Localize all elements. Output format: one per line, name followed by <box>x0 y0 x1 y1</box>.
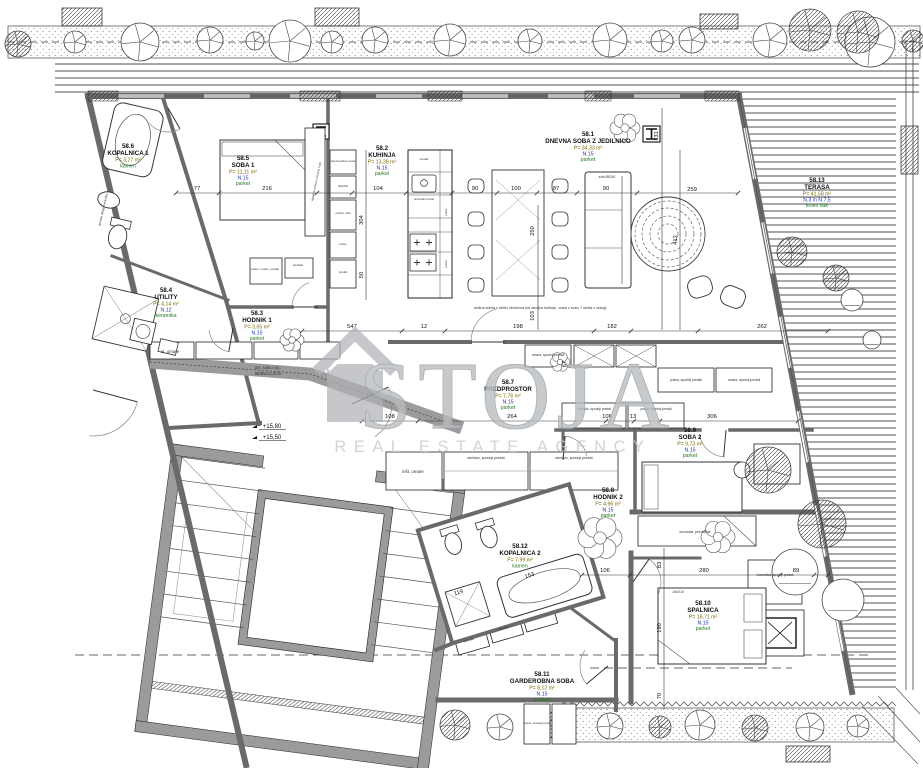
annotation-label: dvižna stena v obliki obložena kot okoli… <box>474 306 607 310</box>
flower-center <box>594 532 606 544</box>
elevator-core <box>242 494 388 657</box>
dimension-label: 131 <box>654 131 660 141</box>
room-finish: parket <box>683 453 698 459</box>
stair-wall <box>135 721 430 768</box>
stair-step <box>161 617 244 628</box>
room-finish: keramika <box>155 313 176 319</box>
drawing-shape <box>822 579 864 621</box>
annotation-label: omara, spodnji predali <box>728 378 761 382</box>
tree-icon <box>837 11 879 53</box>
door-arc <box>89 402 137 436</box>
tree-icon <box>518 29 542 53</box>
room-name: TERASA <box>804 184 830 191</box>
room-number: 58.2 <box>376 145 389 152</box>
annotation-label: polica, spodaj predal <box>523 721 551 725</box>
tree-icon <box>434 24 466 56</box>
dimension-label: 104 <box>373 186 383 192</box>
elevation-arrow-icon <box>252 425 257 428</box>
dimension-label: 50 <box>359 272 365 278</box>
chair-icon <box>552 245 568 259</box>
annotation-label: pomivalno korito <box>414 197 435 201</box>
tree-icon <box>847 715 869 737</box>
stair-step <box>377 599 438 607</box>
chair-icon <box>468 245 484 259</box>
room-finish: parket <box>581 157 596 163</box>
annotation-label: obešalo, spodnji predali <box>555 456 593 460</box>
annotation-label: pečica, niša <box>336 211 351 215</box>
room-name: KOPALNICA 1 <box>107 150 149 157</box>
chair-icon <box>552 212 568 226</box>
watermark: STOJAREAL ESTATE AGENCY <box>316 334 675 456</box>
room-number: 58.9 <box>684 427 697 434</box>
tree-icon <box>593 23 627 57</box>
room-number: 58.13 <box>809 177 825 184</box>
dimension-label: 90 <box>472 186 478 192</box>
dimension-label: 12 <box>421 324 427 330</box>
room-name: SOBA 1 <box>232 162 255 169</box>
elevation-value: +15,50 <box>263 435 282 441</box>
wall-pillar <box>300 91 340 101</box>
hatched-block <box>62 8 102 26</box>
room-number: 58.5 <box>237 155 250 162</box>
room-name: UTILITY <box>154 294 178 301</box>
flower-center <box>713 532 723 542</box>
tree-icon <box>753 23 787 57</box>
armchair-icon <box>718 283 748 311</box>
room-name: SOBA 2 <box>679 434 702 441</box>
stair-step <box>167 571 250 582</box>
annotation-label: police <box>444 208 448 216</box>
annotation-label: el. omare <box>161 349 180 354</box>
annotation-label: 160/210 <box>672 590 684 594</box>
flower-icon <box>701 521 735 552</box>
dimension-label: 100 <box>511 186 521 192</box>
annotation-label: predali <box>420 157 429 161</box>
floorplan-drawing: 58.1DNEVNA SOBA Z JEDILNICOP= 34,33 m²N.… <box>0 0 923 768</box>
room-number: 58.12 <box>512 543 528 550</box>
room-name: GARDEROBNA SOBA <box>510 678 575 685</box>
dimension-label: 262 <box>757 324 767 330</box>
annotation-label: sofa 85/240 <box>599 175 616 179</box>
drawing-shape <box>220 140 305 220</box>
annotation-label: 95/85/12,5cm <box>255 371 282 376</box>
room-number: 58.8 <box>602 487 615 494</box>
flower-center <box>621 124 629 132</box>
rug-icon <box>631 197 705 271</box>
elevator-core-edge <box>247 499 384 653</box>
tree-icon <box>651 30 673 52</box>
chair-icon <box>468 278 484 292</box>
terrace-chair-icon <box>822 579 864 621</box>
room-number: 58.4 <box>160 287 173 294</box>
tree-icon <box>679 27 705 53</box>
room-name: KOPALNICA 2 <box>499 550 541 557</box>
planter-zigzag <box>560 702 896 706</box>
tree-icon <box>487 714 513 740</box>
wall-pillar <box>585 91 611 101</box>
stair-step <box>179 480 262 491</box>
room-name: KUHINJA <box>368 152 396 159</box>
tree-icon <box>5 31 31 57</box>
tree-icon <box>685 710 715 740</box>
door-swing-icon <box>292 283 318 307</box>
closet-box <box>250 258 282 284</box>
stair-landing-band <box>152 681 425 724</box>
room-finish: parket <box>535 697 550 703</box>
tree-icon <box>321 31 343 53</box>
tree-icon <box>745 447 791 493</box>
elevation-mark: +15,50 <box>252 435 286 441</box>
tree-icon <box>742 715 768 741</box>
flower-center <box>289 337 296 344</box>
watermark-tagline: REAL ESTATE AGENCY <box>334 438 651 456</box>
door-leaf <box>587 666 608 684</box>
dimension-label: 216 <box>262 186 272 192</box>
kitchen-island <box>408 150 452 298</box>
closet-box <box>552 704 576 744</box>
door-leaf <box>93 390 137 402</box>
stair-step <box>374 622 435 630</box>
room-finish: kamen <box>120 163 136 169</box>
room-finish: parket <box>696 626 711 632</box>
annotation-label: obešalo, spodnji predali <box>467 456 505 460</box>
bathroom-2 <box>418 484 604 643</box>
annotation-label: police, omare, predali <box>251 267 279 271</box>
washer-icon <box>130 318 156 344</box>
kitchen-tall-units <box>330 150 356 288</box>
annotation-label: om. talno og.: <box>255 365 282 370</box>
drawing-shape <box>650 216 686 252</box>
terrace-chair-icon <box>863 331 881 349</box>
door-leaf <box>724 430 726 457</box>
dimension-label: 70 <box>657 693 663 699</box>
tree-icon <box>121 23 159 61</box>
tree-icon <box>902 30 923 52</box>
room-finish: parket <box>375 171 390 177</box>
floorplan-svg: 58.1DNEVNA SOBA Z JEDILNICOP= 34,33 m²N.… <box>0 0 923 768</box>
elevation-value: +15,80 <box>263 424 282 430</box>
door-swing-icon <box>471 309 505 342</box>
dimension-label: 259 <box>687 187 697 193</box>
stair-step <box>170 548 253 559</box>
room-label-58-9: 58.9SOBA 2P= 9,73 m²N.15parket <box>677 427 703 459</box>
room-number: 58.3 <box>251 310 264 317</box>
tree-icon <box>796 713 824 741</box>
drawing-shape <box>658 588 766 664</box>
dimension-label: 90 <box>603 186 609 192</box>
chair-icon <box>468 212 484 226</box>
annotation-label: komoda, predalnik <box>679 530 710 534</box>
annotation-label: hladilnik <box>338 184 349 188</box>
hatched-block <box>786 746 830 762</box>
annotation-label: zamrzovalna omara <box>331 159 356 163</box>
annotation-label: obešalo <box>293 263 304 267</box>
door-leaf <box>633 559 649 582</box>
room-label-58-8: 58.8HODNIK 2P= 4,96 m²N.15parket <box>593 487 623 519</box>
door-swing-icon <box>89 390 137 436</box>
stair-step <box>389 508 450 516</box>
room-label-58-3: 58.3HODNIK 1P= 3,65 m²N.15parket <box>242 310 272 342</box>
tree-icon <box>789 9 831 51</box>
room-name: HODNIK 1 <box>242 317 272 324</box>
wall <box>163 98 228 307</box>
room-number: 58.10 <box>695 600 711 607</box>
stair-step <box>173 526 256 537</box>
deck-band-top <box>55 58 919 95</box>
dimension-label: 106 <box>600 568 610 574</box>
room-finish: parket <box>601 513 616 519</box>
terrace-chair-icon <box>841 289 863 311</box>
watermark-brand: STOJA <box>359 342 675 449</box>
bed-icon <box>642 462 742 512</box>
annotation-label: police <box>444 260 448 268</box>
room-name: SPALNICA <box>687 607 719 614</box>
tree-icon <box>823 265 849 291</box>
chair-icon <box>552 278 568 292</box>
dimension-label: 304 <box>359 214 365 224</box>
elevation-arrow-icon <box>252 436 257 439</box>
room-name: DNEVNA SOBA Z JEDILNICO <box>545 138 631 145</box>
washbasin-icon <box>96 190 121 211</box>
room-finish: parket <box>250 336 265 342</box>
drawing-shape <box>863 331 881 349</box>
dimension-label: 77 <box>194 186 200 192</box>
dimension-label: 250 <box>530 226 536 236</box>
room-number: 58.1 <box>582 131 595 138</box>
room-number: 58.11 <box>534 671 550 678</box>
annotation-label: predali <box>339 270 348 274</box>
tree-icon <box>649 716 671 738</box>
bed-icon <box>658 588 766 664</box>
room-finish: parket <box>236 181 251 187</box>
tree-icon <box>798 500 846 548</box>
drawing-shape <box>635 201 701 267</box>
door-arc <box>471 309 496 342</box>
room-finish: lesen tlak <box>806 203 828 209</box>
dimension-label: 306 <box>707 414 717 420</box>
wall-pillar <box>705 91 739 101</box>
room-name: HODNIK 2 <box>593 494 623 501</box>
wall-pillar <box>88 91 118 101</box>
closet-box <box>285 258 313 278</box>
room-number: 58.6 <box>122 143 135 150</box>
dimension-label: 182 <box>607 324 617 330</box>
hatched-block <box>901 126 918 174</box>
annotation-label: inšt. omare <box>402 469 424 474</box>
tree-icon <box>269 20 311 62</box>
door-arc <box>292 283 309 307</box>
bed-icon <box>220 140 305 220</box>
closet-box <box>330 200 356 230</box>
stair-wall <box>171 444 264 467</box>
armchair-icon <box>685 274 714 300</box>
hatched-block <box>315 8 359 26</box>
room-label-58-4: 58.4UTILITYP= 4,14 m²N.12keramika <box>153 287 179 319</box>
tree-icon <box>597 713 623 739</box>
door-arc <box>699 435 723 457</box>
tree-icon <box>246 32 264 50</box>
dimension-label: 89 <box>793 568 799 574</box>
annotation-label: kozmetika, spodnji predali <box>757 573 794 577</box>
wall-pillar <box>428 91 462 101</box>
room-finish: kamen <box>512 563 528 569</box>
dimension-line <box>300 329 830 333</box>
toilet-icon <box>105 217 131 251</box>
hatched-block <box>700 14 738 29</box>
room-label-58-2: 58.2KUHINJAP= 13,38 m²N.15parket <box>368 145 397 177</box>
dimension-label: 190 <box>657 623 663 633</box>
drawing-shape <box>841 289 863 311</box>
tree-icon <box>777 237 807 267</box>
door-swing-icon <box>699 430 726 457</box>
dimension-label: 412 <box>673 235 679 245</box>
bathroom-1 <box>63 101 200 351</box>
drawing-shape <box>642 462 742 512</box>
flower-icon <box>578 518 622 559</box>
tree-icon <box>362 27 388 53</box>
closet-box <box>330 260 356 288</box>
tree-icon <box>197 27 223 53</box>
dimension-label: 280 <box>699 568 709 574</box>
stair-step <box>371 645 432 653</box>
dimension-label: 198 <box>513 324 523 330</box>
dimension-label: 103 <box>530 311 536 321</box>
annotation-label: police <box>339 242 347 246</box>
dimension-label: 83 <box>657 562 663 568</box>
tree-icon <box>64 31 86 53</box>
tree-icon <box>440 710 470 740</box>
wall <box>168 423 260 428</box>
dimension-label: 87 <box>553 186 559 192</box>
